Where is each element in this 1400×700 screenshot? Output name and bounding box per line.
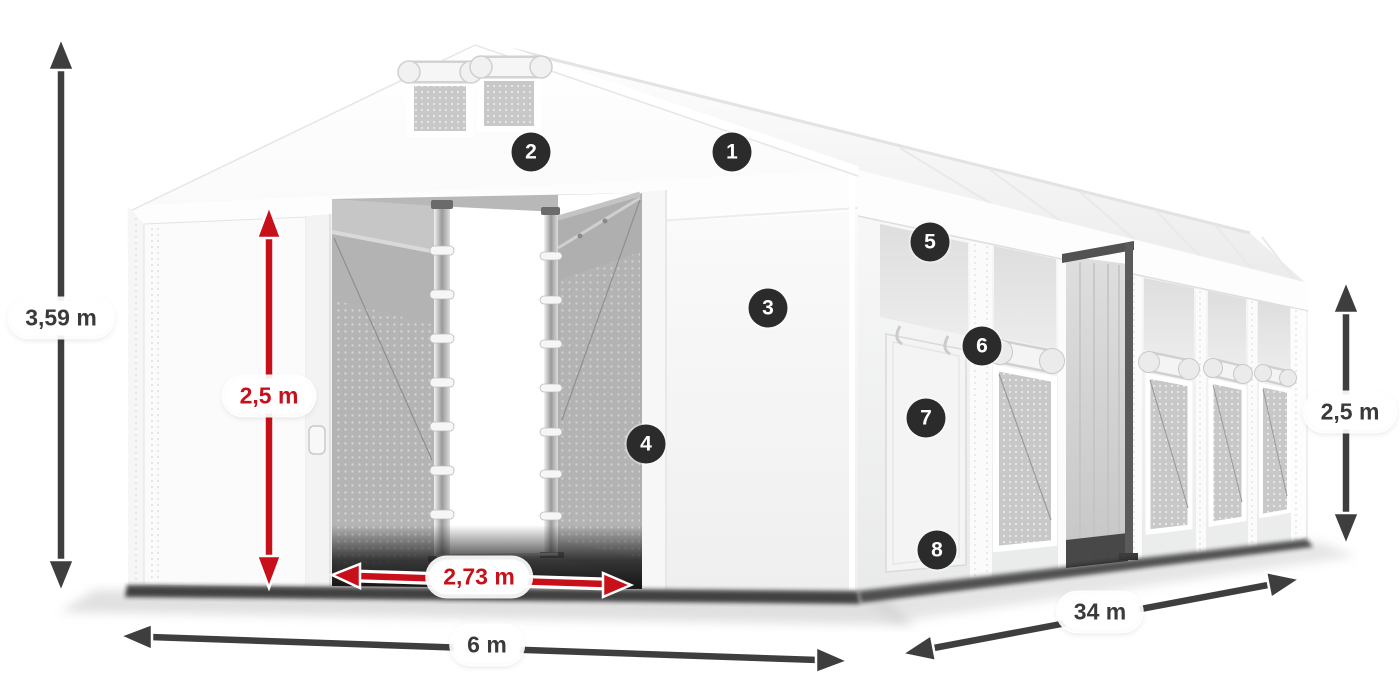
side-mesh-window: [988, 340, 1065, 550]
tent-dimension-diagram: 3,59 m 2,5 m 2,73 m 6 m 34 m 2,5 m 1 2 3…: [0, 0, 1400, 700]
door-handle: [309, 426, 325, 454]
front-width-label: 6 m: [453, 628, 521, 663]
callout-marker-3[interactable]: 3: [749, 289, 788, 328]
callout-marker-5[interactable]: 5: [911, 223, 950, 262]
side-entrance: [1062, 241, 1138, 568]
front-entrance-interior: [332, 193, 642, 589]
side-length-label: 34 m: [1060, 595, 1140, 630]
entrance-height-label: 2,5 m: [226, 379, 313, 414]
callout-marker-1[interactable]: 1: [713, 133, 752, 172]
callout-marker-7[interactable]: 7: [907, 399, 946, 438]
callout-marker-4[interactable]: 4: [627, 425, 666, 464]
entrance-width-label: 2,73 m: [429, 560, 529, 595]
tent-illustration: [0, 0, 1400, 700]
callout-marker-6[interactable]: 6: [963, 327, 1002, 366]
side-wall-height-label: 2,5 m: [1307, 395, 1394, 430]
total-height-label: 3,59 m: [11, 301, 111, 336]
callout-marker-2[interactable]: 2: [512, 133, 551, 172]
callout-marker-8[interactable]: 8: [918, 531, 957, 570]
